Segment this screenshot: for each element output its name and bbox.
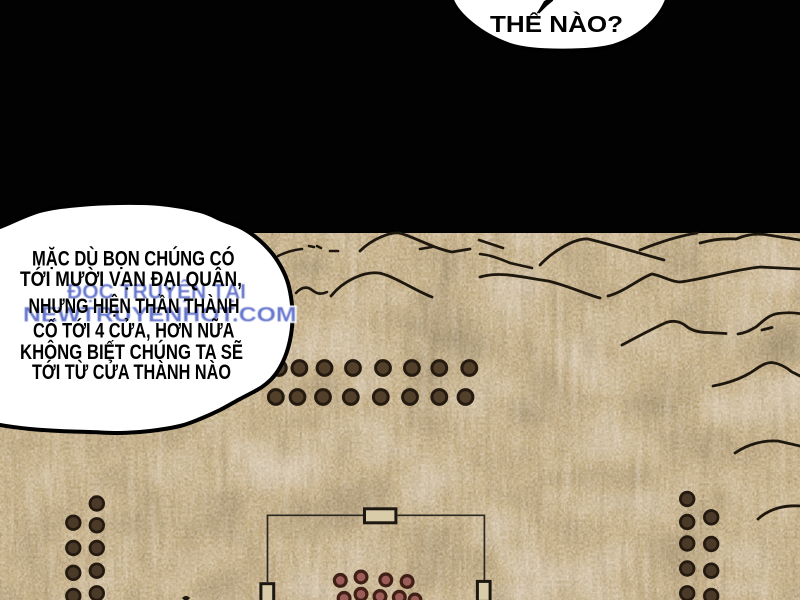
- svg-text:TỚI MƯỜI VẠN ĐẠI QUÂN,: TỚI MƯỜI VẠN ĐẠI QUÂN,: [20, 266, 242, 291]
- svg-text:NHƯNG HIỆN THẦN THÀNH: NHƯNG HIỆN THẦN THÀNH: [29, 293, 240, 318]
- svg-text:TỚI TỪ CỬA THÀNH NÀO: TỚI TỪ CỬA THÀNH NÀO: [32, 359, 231, 384]
- svg-text:CỐ TỚI 4 CỬA, HƠN NỮA: CỐ TỚI 4 CỬA, HƠN NỮA: [33, 317, 235, 343]
- svg-text:THẾ NÀO?: THẾ NÀO?: [490, 10, 623, 37]
